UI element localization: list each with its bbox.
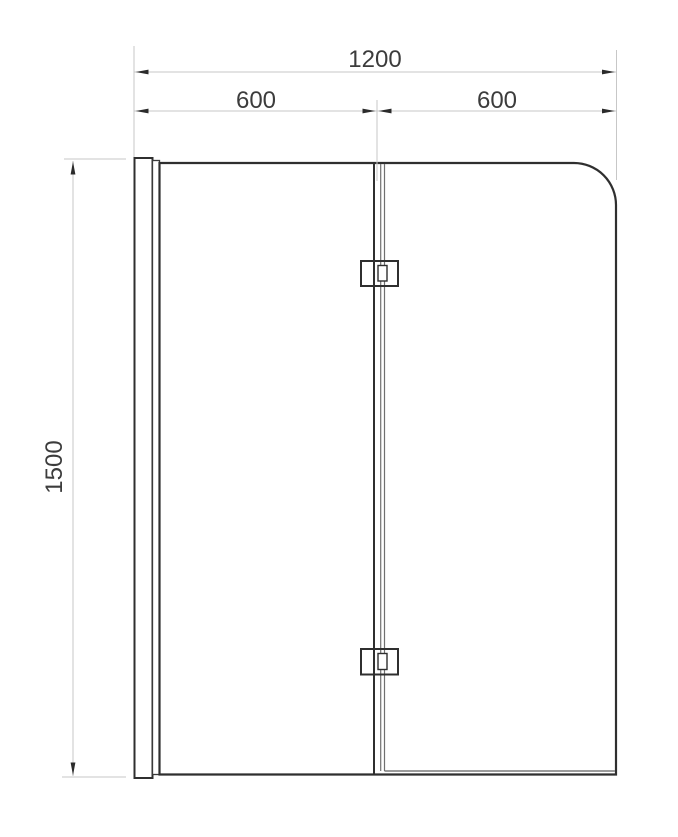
dim-label-total-width: 1200 <box>348 46 401 73</box>
screen-drawing <box>135 158 617 778</box>
wall-profile <box>135 158 153 778</box>
arrowhead-right-panel-left <box>379 109 392 114</box>
arrowhead-right <box>602 70 615 75</box>
arrowhead-top <box>71 162 76 175</box>
bath-screen-diagram: 1200 600 600 1500 <box>0 0 678 837</box>
dim-label-right-panel: 600 <box>477 87 517 114</box>
arrowhead-bottom <box>71 763 76 776</box>
arrowhead-left <box>136 70 149 75</box>
arrowhead-right-panel-right <box>602 109 615 114</box>
dim-label-height: 1500 <box>41 440 68 493</box>
arrowhead-left-panel-left <box>136 109 149 114</box>
technical-drawing-page: 1200 600 600 1500 <box>0 0 678 837</box>
bottom-hinge-pin <box>378 654 387 670</box>
dimension-height: 1500 <box>41 159 126 777</box>
dimension-total-width: 1200 <box>134 46 617 180</box>
top-hinge-pin <box>378 266 387 282</box>
glass-panels-outline <box>160 163 617 775</box>
dim-label-left-panel: 600 <box>236 87 276 114</box>
arrowhead-left-panel-right <box>363 109 376 114</box>
